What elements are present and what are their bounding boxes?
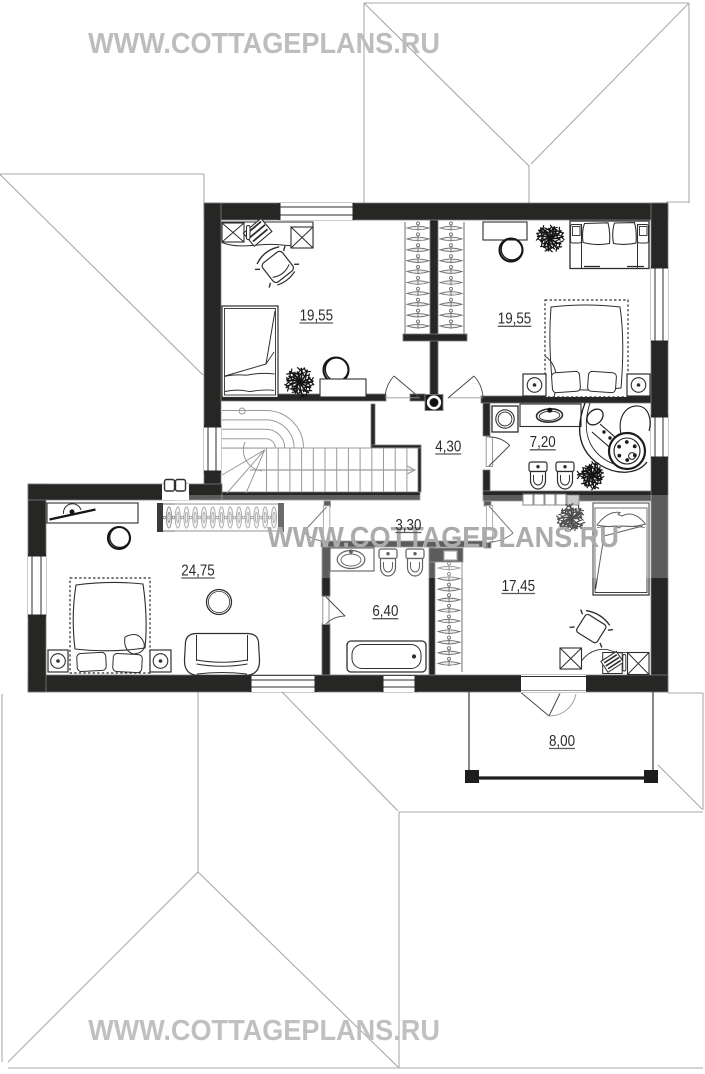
svg-text:17,45: 17,45 <box>502 578 535 595</box>
svg-text:WWW.COTTAGEPLANS.RU: WWW.COTTAGEPLANS.RU <box>88 27 440 59</box>
svg-text:19,55: 19,55 <box>300 308 333 325</box>
svg-text:WWW.COTTAGEPLANS.RU: WWW.COTTAGEPLANS.RU <box>88 1014 440 1046</box>
svg-text:3,30: 3,30 <box>395 517 421 534</box>
svg-text:8,00: 8,00 <box>549 733 575 750</box>
svg-text:4,30: 4,30 <box>435 439 461 456</box>
svg-text:6,40: 6,40 <box>372 603 398 620</box>
svg-text:19,55: 19,55 <box>498 311 531 328</box>
svg-text:7,20: 7,20 <box>530 434 556 451</box>
svg-text:WWW.COTTAGEPLANS.RU: WWW.COTTAGEPLANS.RU <box>267 521 619 553</box>
